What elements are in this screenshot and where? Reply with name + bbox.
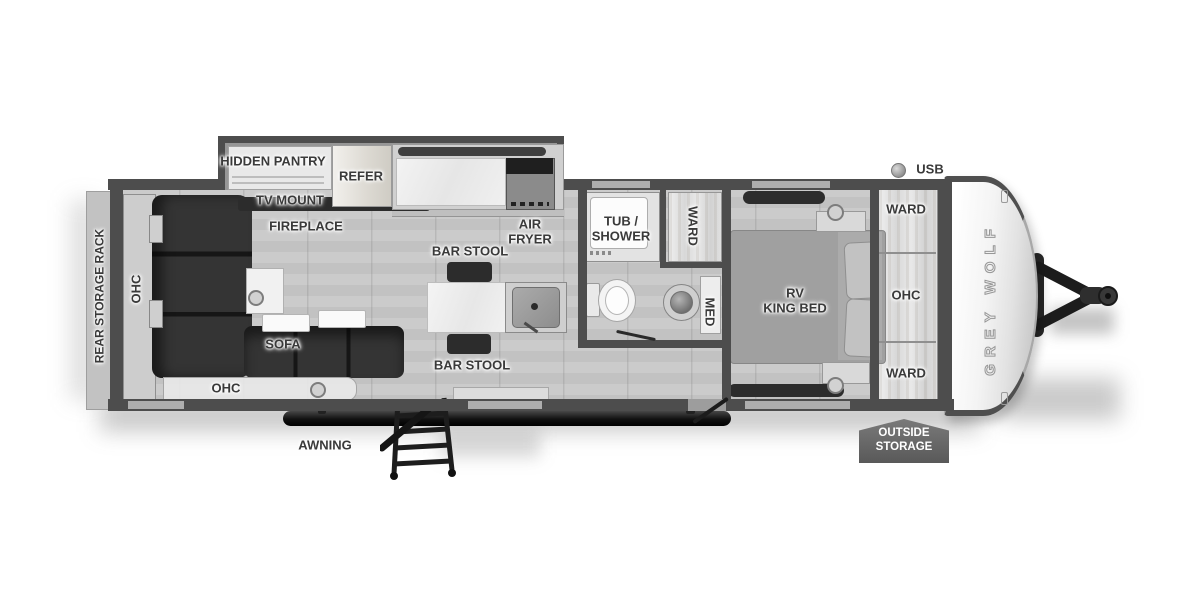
tray-table-2 xyxy=(318,310,366,328)
usb-label: USB xyxy=(916,163,943,178)
bar-stool-2 xyxy=(447,334,491,354)
wall-rear xyxy=(110,179,123,411)
cap-latch-top xyxy=(1001,190,1008,203)
wall-front xyxy=(938,179,952,411)
med-label: MED xyxy=(702,298,717,327)
ohc-bedroom-label: OHC xyxy=(892,289,921,304)
sofa-chaise xyxy=(152,195,252,378)
counter-marble xyxy=(396,158,506,206)
ward-bottom-label: WARD xyxy=(886,367,926,382)
air-fryer-label: AIR FRYER xyxy=(508,217,552,246)
toilet-seat xyxy=(605,286,629,315)
window-bottom-bedroom xyxy=(745,401,850,409)
pantry-shelf-lines xyxy=(232,176,324,184)
window-bottom-galley xyxy=(468,401,542,409)
tub-shower-label: TUB / SHOWER xyxy=(592,214,651,243)
ward-top-label: WARD xyxy=(886,203,926,218)
window-top-bedroom xyxy=(752,181,830,188)
refer-label: REFER xyxy=(339,170,383,185)
ohc-bottom-speaker xyxy=(310,382,326,398)
tv-mount-label: TV MOUNT xyxy=(256,194,324,209)
tray-table-1 xyxy=(262,314,310,332)
floorplan-stage: REAR STORAGE RACK HIDDEN PANTRY REFER TV… xyxy=(0,0,1200,600)
lav-sink-bowl xyxy=(670,291,693,314)
ohc-bottom-label: OHC xyxy=(212,382,241,397)
counter-backsplash xyxy=(398,147,546,156)
wall-bath-bedroom xyxy=(722,186,731,400)
sofa-armwrap-2 xyxy=(149,300,163,328)
air-fryer-buttons xyxy=(511,202,549,206)
wardrobe-divider-1 xyxy=(878,252,936,254)
fireplace-label: FIREPLACE xyxy=(269,220,343,235)
peninsula-counter xyxy=(427,282,507,333)
ohc-bottom-cabinet xyxy=(163,377,357,401)
awning-label: AWNING xyxy=(298,439,351,454)
air-fryer-lid xyxy=(506,158,553,174)
rv-king-bed-label: RV KING BED xyxy=(763,286,827,315)
bar-stool-top-label: BAR STOOL xyxy=(432,245,508,260)
usb-indicator-dot xyxy=(891,163,906,178)
table-cupholder xyxy=(248,290,264,306)
rear-storage-rack-label: REAR STORAGE RACK xyxy=(93,229,106,363)
bar-stool-bottom-label: BAR STOOL xyxy=(434,359,510,374)
bedroom-speaker-bottom xyxy=(827,377,844,394)
sofa-label: SOFA xyxy=(265,338,300,353)
wall-wardrobe xyxy=(870,186,879,400)
wall-bath-left xyxy=(578,186,587,348)
cap-latch-bottom xyxy=(1001,392,1008,405)
brand-logo: GREY WOLF xyxy=(982,209,1002,389)
wall-top-left xyxy=(108,179,218,190)
wall-bath-inner-horz xyxy=(660,262,731,268)
shower-jets xyxy=(590,251,614,255)
awning-roller xyxy=(283,411,731,426)
window-bottom-rear xyxy=(128,401,184,409)
hidden-pantry-label: HIDDEN PANTRY xyxy=(220,155,325,170)
sofa-armwrap-1 xyxy=(149,215,163,243)
bar-stool-1 xyxy=(447,262,492,282)
bedroom-speaker-top xyxy=(827,204,844,221)
sink-drain xyxy=(531,303,538,310)
bedroom-bolster-top xyxy=(743,191,825,204)
window-top-bath xyxy=(592,181,650,188)
wall-bath-inner-vert xyxy=(660,190,666,268)
wall-bath-bottom xyxy=(578,340,731,348)
bath-ward-label: WARD xyxy=(685,206,700,246)
wardrobe-divider-2 xyxy=(878,341,936,343)
ohc-left-label: OHC xyxy=(130,275,145,304)
